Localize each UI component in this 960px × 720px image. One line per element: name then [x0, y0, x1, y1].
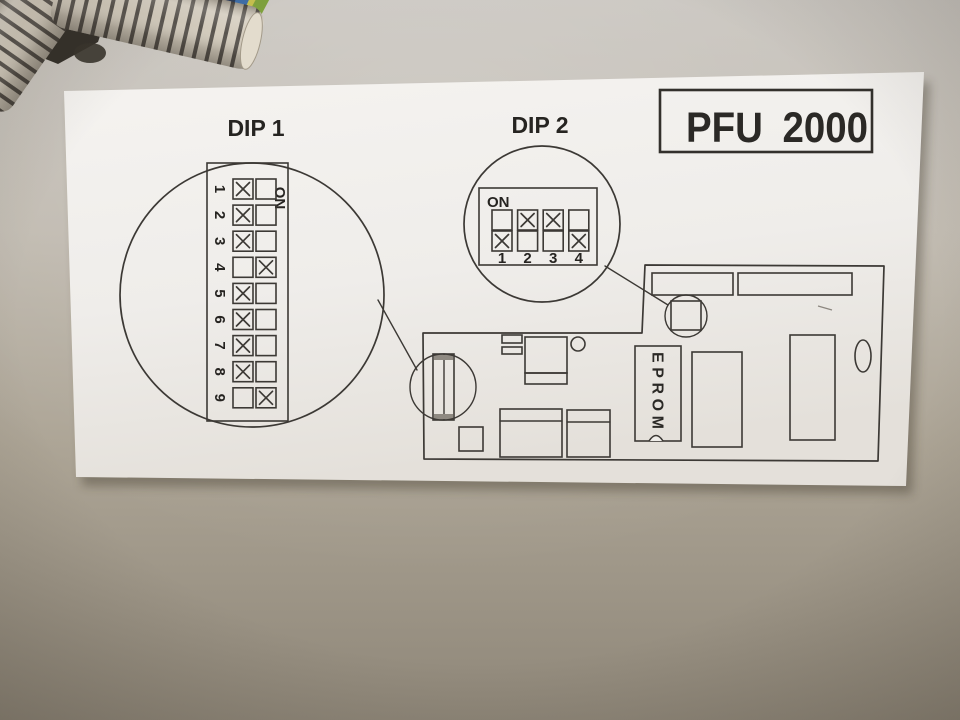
diagram-photo-canvas: DIP 1 ON 123456789 DIP 2 ON 1234 PFU 200…	[0, 0, 960, 720]
photo-of-dip-switch-diagram: DIP 1 ON 123456789 DIP 2 ON 1234 PFU 200…	[0, 0, 960, 720]
photo-vignette	[0, 0, 960, 720]
